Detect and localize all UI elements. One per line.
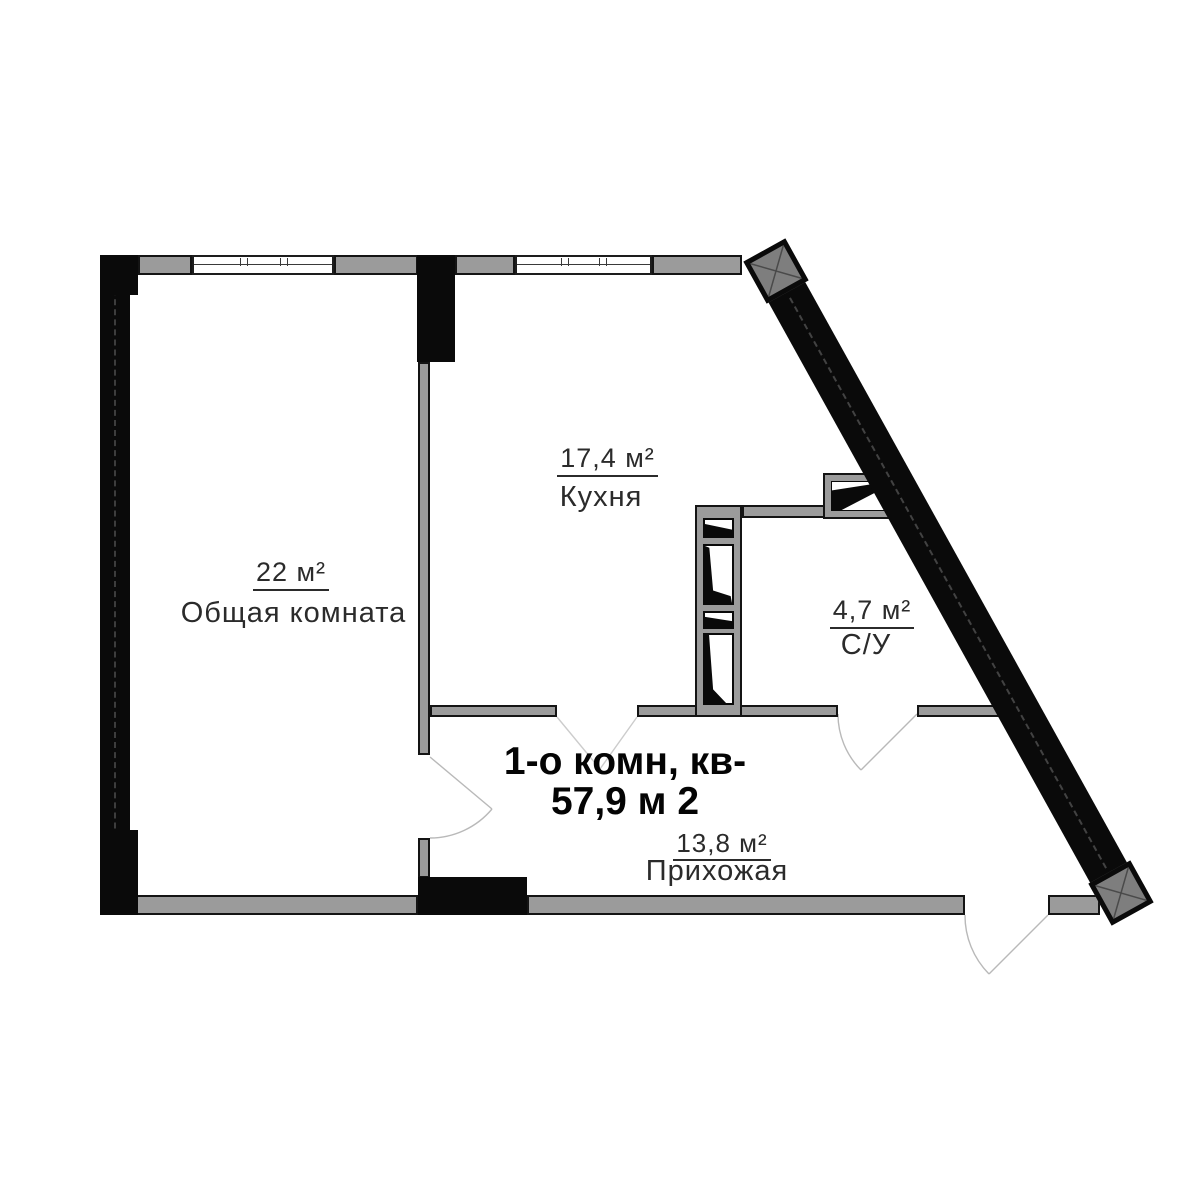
window-kitchen bbox=[515, 255, 652, 275]
wall-kitchen-hall-left bbox=[430, 705, 557, 717]
window-frame-line bbox=[194, 258, 332, 265]
vent-cell bbox=[703, 611, 734, 629]
window-mullion bbox=[280, 258, 288, 266]
vent-flap-icon bbox=[705, 635, 732, 703]
window-living-room bbox=[192, 255, 334, 275]
bathroom-area-label: 4,7 м² bbox=[772, 596, 972, 629]
wall-bottom-block bbox=[418, 877, 527, 915]
area-value: 4,7 м² bbox=[830, 596, 915, 629]
living-room-area-label: 22 м² bbox=[161, 558, 421, 591]
window-mullion bbox=[561, 258, 569, 266]
entrance-door-arc bbox=[965, 915, 989, 974]
bathroom-door-arc bbox=[838, 714, 861, 770]
wall-left-pier-bottom bbox=[100, 830, 138, 915]
vent-flap-icon bbox=[705, 546, 732, 603]
wall-top-segment-1 bbox=[138, 255, 192, 275]
hallway-name-label: Прихожая bbox=[592, 856, 842, 888]
wall-bottom-hall bbox=[527, 895, 965, 915]
entrance-door-leaf bbox=[989, 915, 1048, 974]
apartment-title: 1-о комн, кв- 57,9 м 2 bbox=[425, 742, 825, 822]
wall-left-pier-top bbox=[100, 255, 138, 295]
bathroom-name-label: С/У bbox=[772, 630, 960, 662]
partition-living-room-door-stub bbox=[418, 838, 430, 878]
ventilation-shaft bbox=[695, 505, 742, 717]
wall-bottom-entrance-stub bbox=[1048, 895, 1100, 915]
pillar-top-center bbox=[417, 255, 455, 362]
wall-top-segment-4 bbox=[652, 255, 742, 275]
floor-plan: 22 м² Общая комната 17,4 м² Кухня 4,7 м²… bbox=[0, 0, 1181, 1181]
vent-flap-icon bbox=[705, 613, 732, 627]
kitchen-name-label: Кухня bbox=[480, 482, 722, 514]
window-frame-line bbox=[517, 258, 650, 265]
living-room-name-label: Общая комната bbox=[161, 598, 426, 630]
bathroom-door-leaf bbox=[861, 714, 917, 770]
wall-left-exterior bbox=[100, 255, 130, 915]
kitchen-area-label: 17,4 м² bbox=[480, 444, 735, 477]
wall-axis-line bbox=[114, 269, 116, 899]
window-mullion bbox=[240, 258, 248, 266]
vent-cell bbox=[703, 633, 734, 705]
wall-bathroom-hall-right bbox=[917, 705, 1002, 717]
vent-cell bbox=[703, 518, 734, 538]
window-mullion bbox=[599, 258, 607, 266]
wall-top-segment-3 bbox=[455, 255, 515, 275]
vent-flap-icon bbox=[705, 520, 732, 536]
apartment-title-line1: 1-о комн, кв- bbox=[425, 742, 825, 782]
wall-bottom-living bbox=[134, 895, 418, 915]
wall-top-segment-2 bbox=[334, 255, 418, 275]
apartment-title-line2: 57,9 м 2 bbox=[425, 782, 825, 822]
area-value: 17,4 м² bbox=[557, 444, 658, 477]
vent-cell bbox=[703, 544, 734, 605]
area-value: 22 м² bbox=[253, 558, 329, 591]
